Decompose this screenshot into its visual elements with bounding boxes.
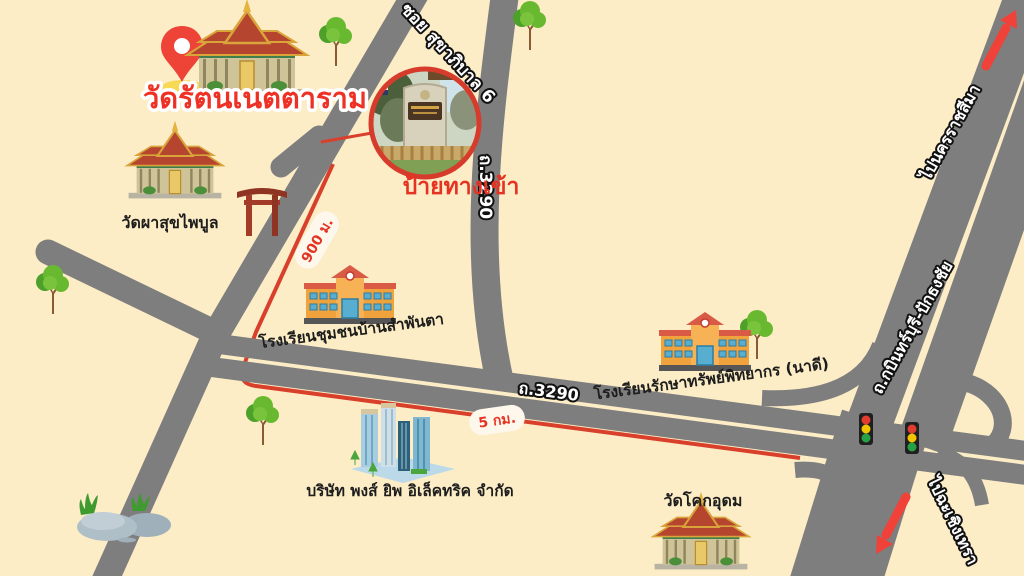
label-entrance-sign-caption: ป้ายทางเข้า [403,174,520,200]
traffic-light-icon [905,422,919,454]
traffic-light-icon [859,413,873,445]
main-temple-title: วัดรัตนเนตตาราม [143,81,367,115]
map-canvas: วัดรัตนเนตตาราม ซอย สุขาภิบาล 6 ถ.3290 ป… [0,0,1024,576]
label-company: บริษัท พงส์ ยิพ อิเล็คทริค จำกัด [306,480,513,500]
label-temple-phasuk: วัดผาสุขไพบูล [122,213,219,234]
label-temple-khokudom: วัดโคกอุดม [664,490,743,511]
map-stage: วัดรัตนเนตตาราม ซอย สุขาภิบาล 6 ถ.3290 ป… [0,0,1024,576]
